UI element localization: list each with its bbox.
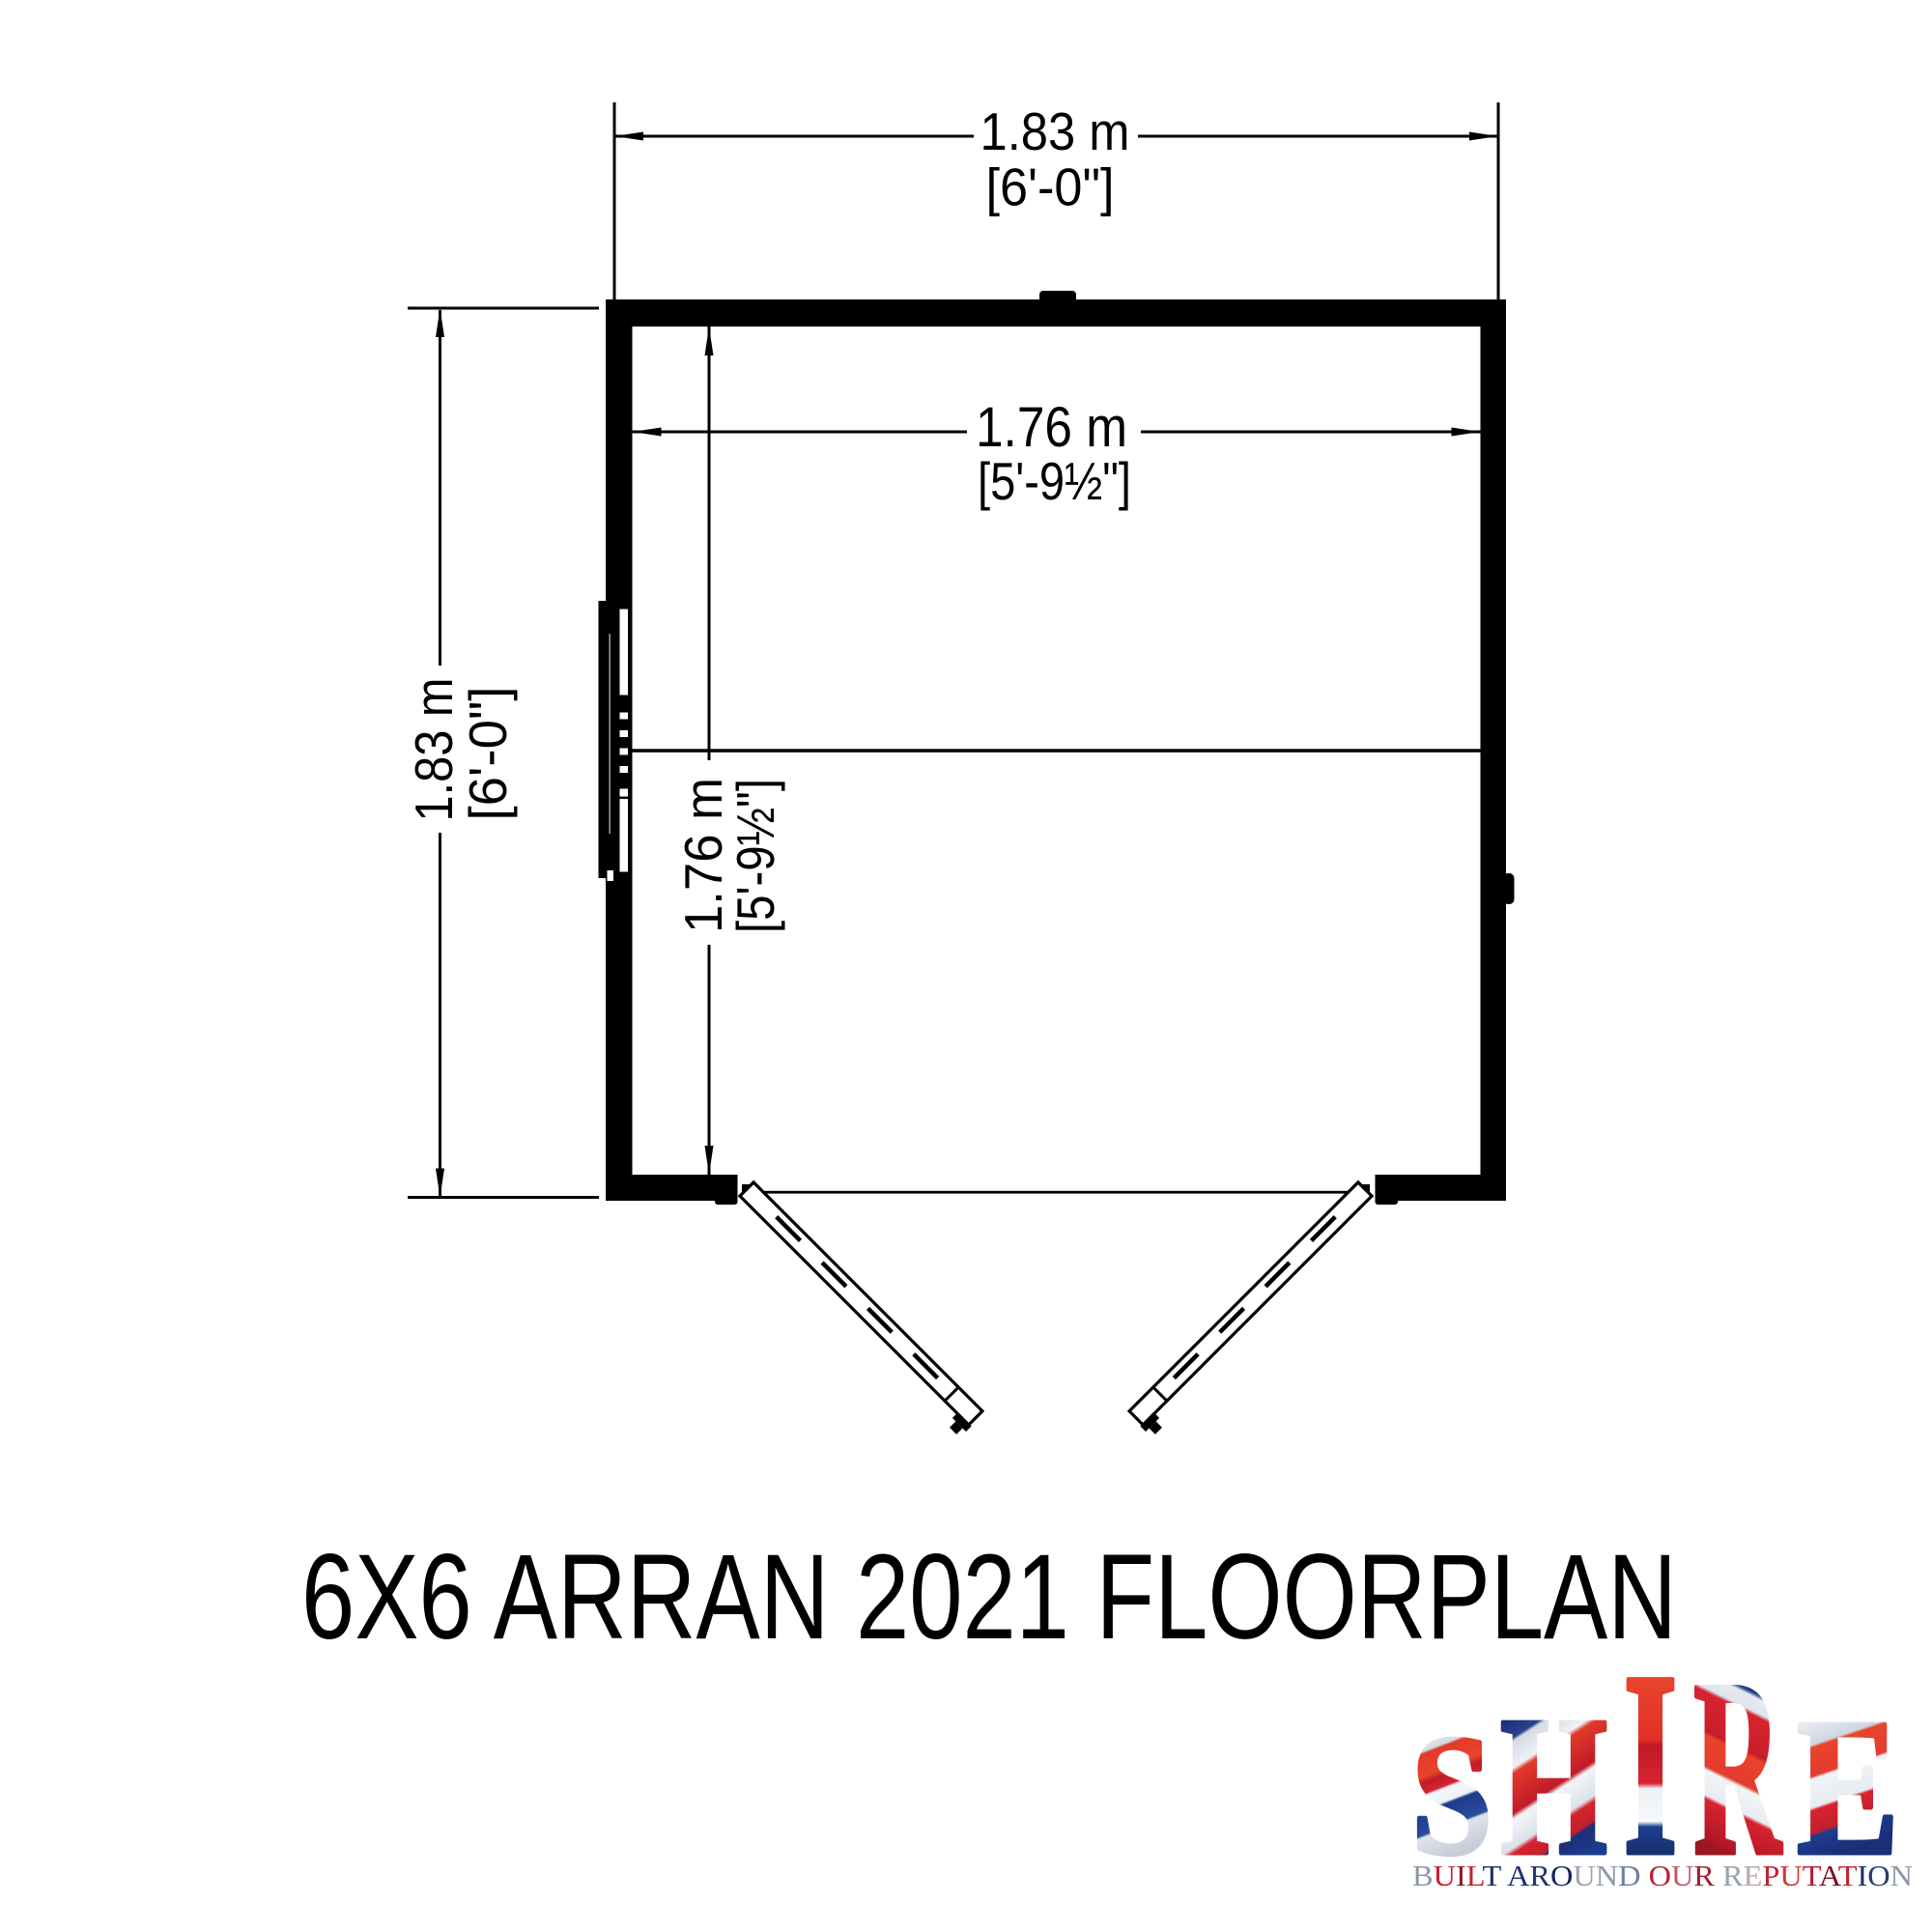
svg-text:BUILT AROUND OUR REPUTATION: BUILT AROUND OUR REPUTATION [1412,1859,1913,1892]
svg-text:[5'-9½"]: [5'-9½"] [725,779,785,933]
svg-text:1.83 m: 1.83 m [980,101,1130,161]
svg-text:6X6 ARRAN 2021 FLOORPLAN: 6X6 ARRAN 2021 FLOORPLAN [301,1530,1677,1664]
svg-text:[5'-9½"]: [5'-9½"] [978,451,1131,511]
svg-text:[6'-0"]: [6'-0"] [986,157,1115,217]
svg-text:1.83 m: 1.83 m [404,678,464,822]
svg-text:[6'-0"]: [6'-0"] [458,687,518,821]
svg-text:1.76 m: 1.76 m [976,396,1127,459]
svg-text:1.76 m: 1.76 m [673,778,733,933]
